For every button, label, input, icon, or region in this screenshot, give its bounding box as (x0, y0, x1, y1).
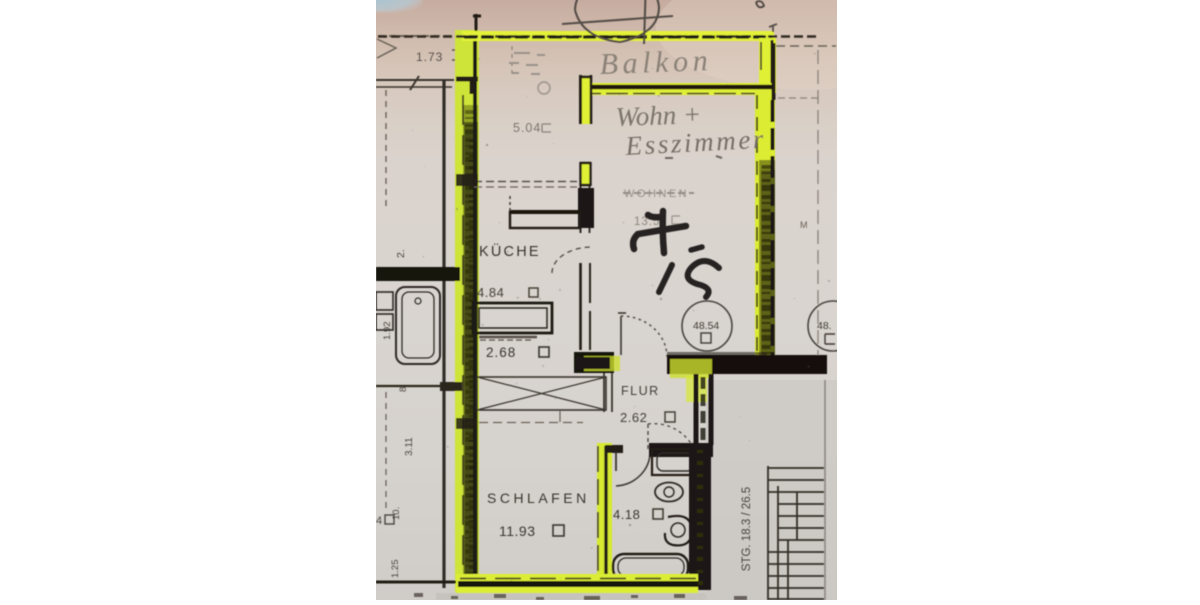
svg-text:5.04: 5.04 (513, 121, 541, 135)
svg-text:M: M (800, 220, 808, 230)
svg-text:STG. 18.3 / 26.5: STG. 18.3 / 26.5 (741, 487, 753, 571)
svg-text:48.54: 48.54 (693, 320, 719, 332)
svg-text:10.: 10. (391, 507, 402, 520)
svg-text:1.25: 1.25 (390, 560, 401, 579)
svg-text:4.84: 4.84 (477, 285, 504, 300)
svg-text:KÜCHE: KÜCHE (479, 242, 541, 260)
svg-text:4: 4 (376, 515, 382, 527)
svg-text:2.: 2. (395, 249, 407, 258)
svg-text:2.62: 2.62 (620, 410, 647, 425)
svg-text:8: 8 (398, 387, 409, 392)
svg-text:FLUR: FLUR (621, 384, 660, 398)
svg-text:1.73: 1.73 (416, 50, 443, 64)
svg-text:4.18: 4.18 (613, 507, 640, 522)
svg-text:11.93: 11.93 (499, 523, 536, 539)
svg-text:3.11: 3.11 (404, 437, 415, 456)
svg-text:2.68: 2.68 (486, 345, 516, 360)
svg-text:48.: 48. (817, 320, 832, 332)
svg-text:SCHLAFEN: SCHLAFEN (487, 490, 590, 506)
